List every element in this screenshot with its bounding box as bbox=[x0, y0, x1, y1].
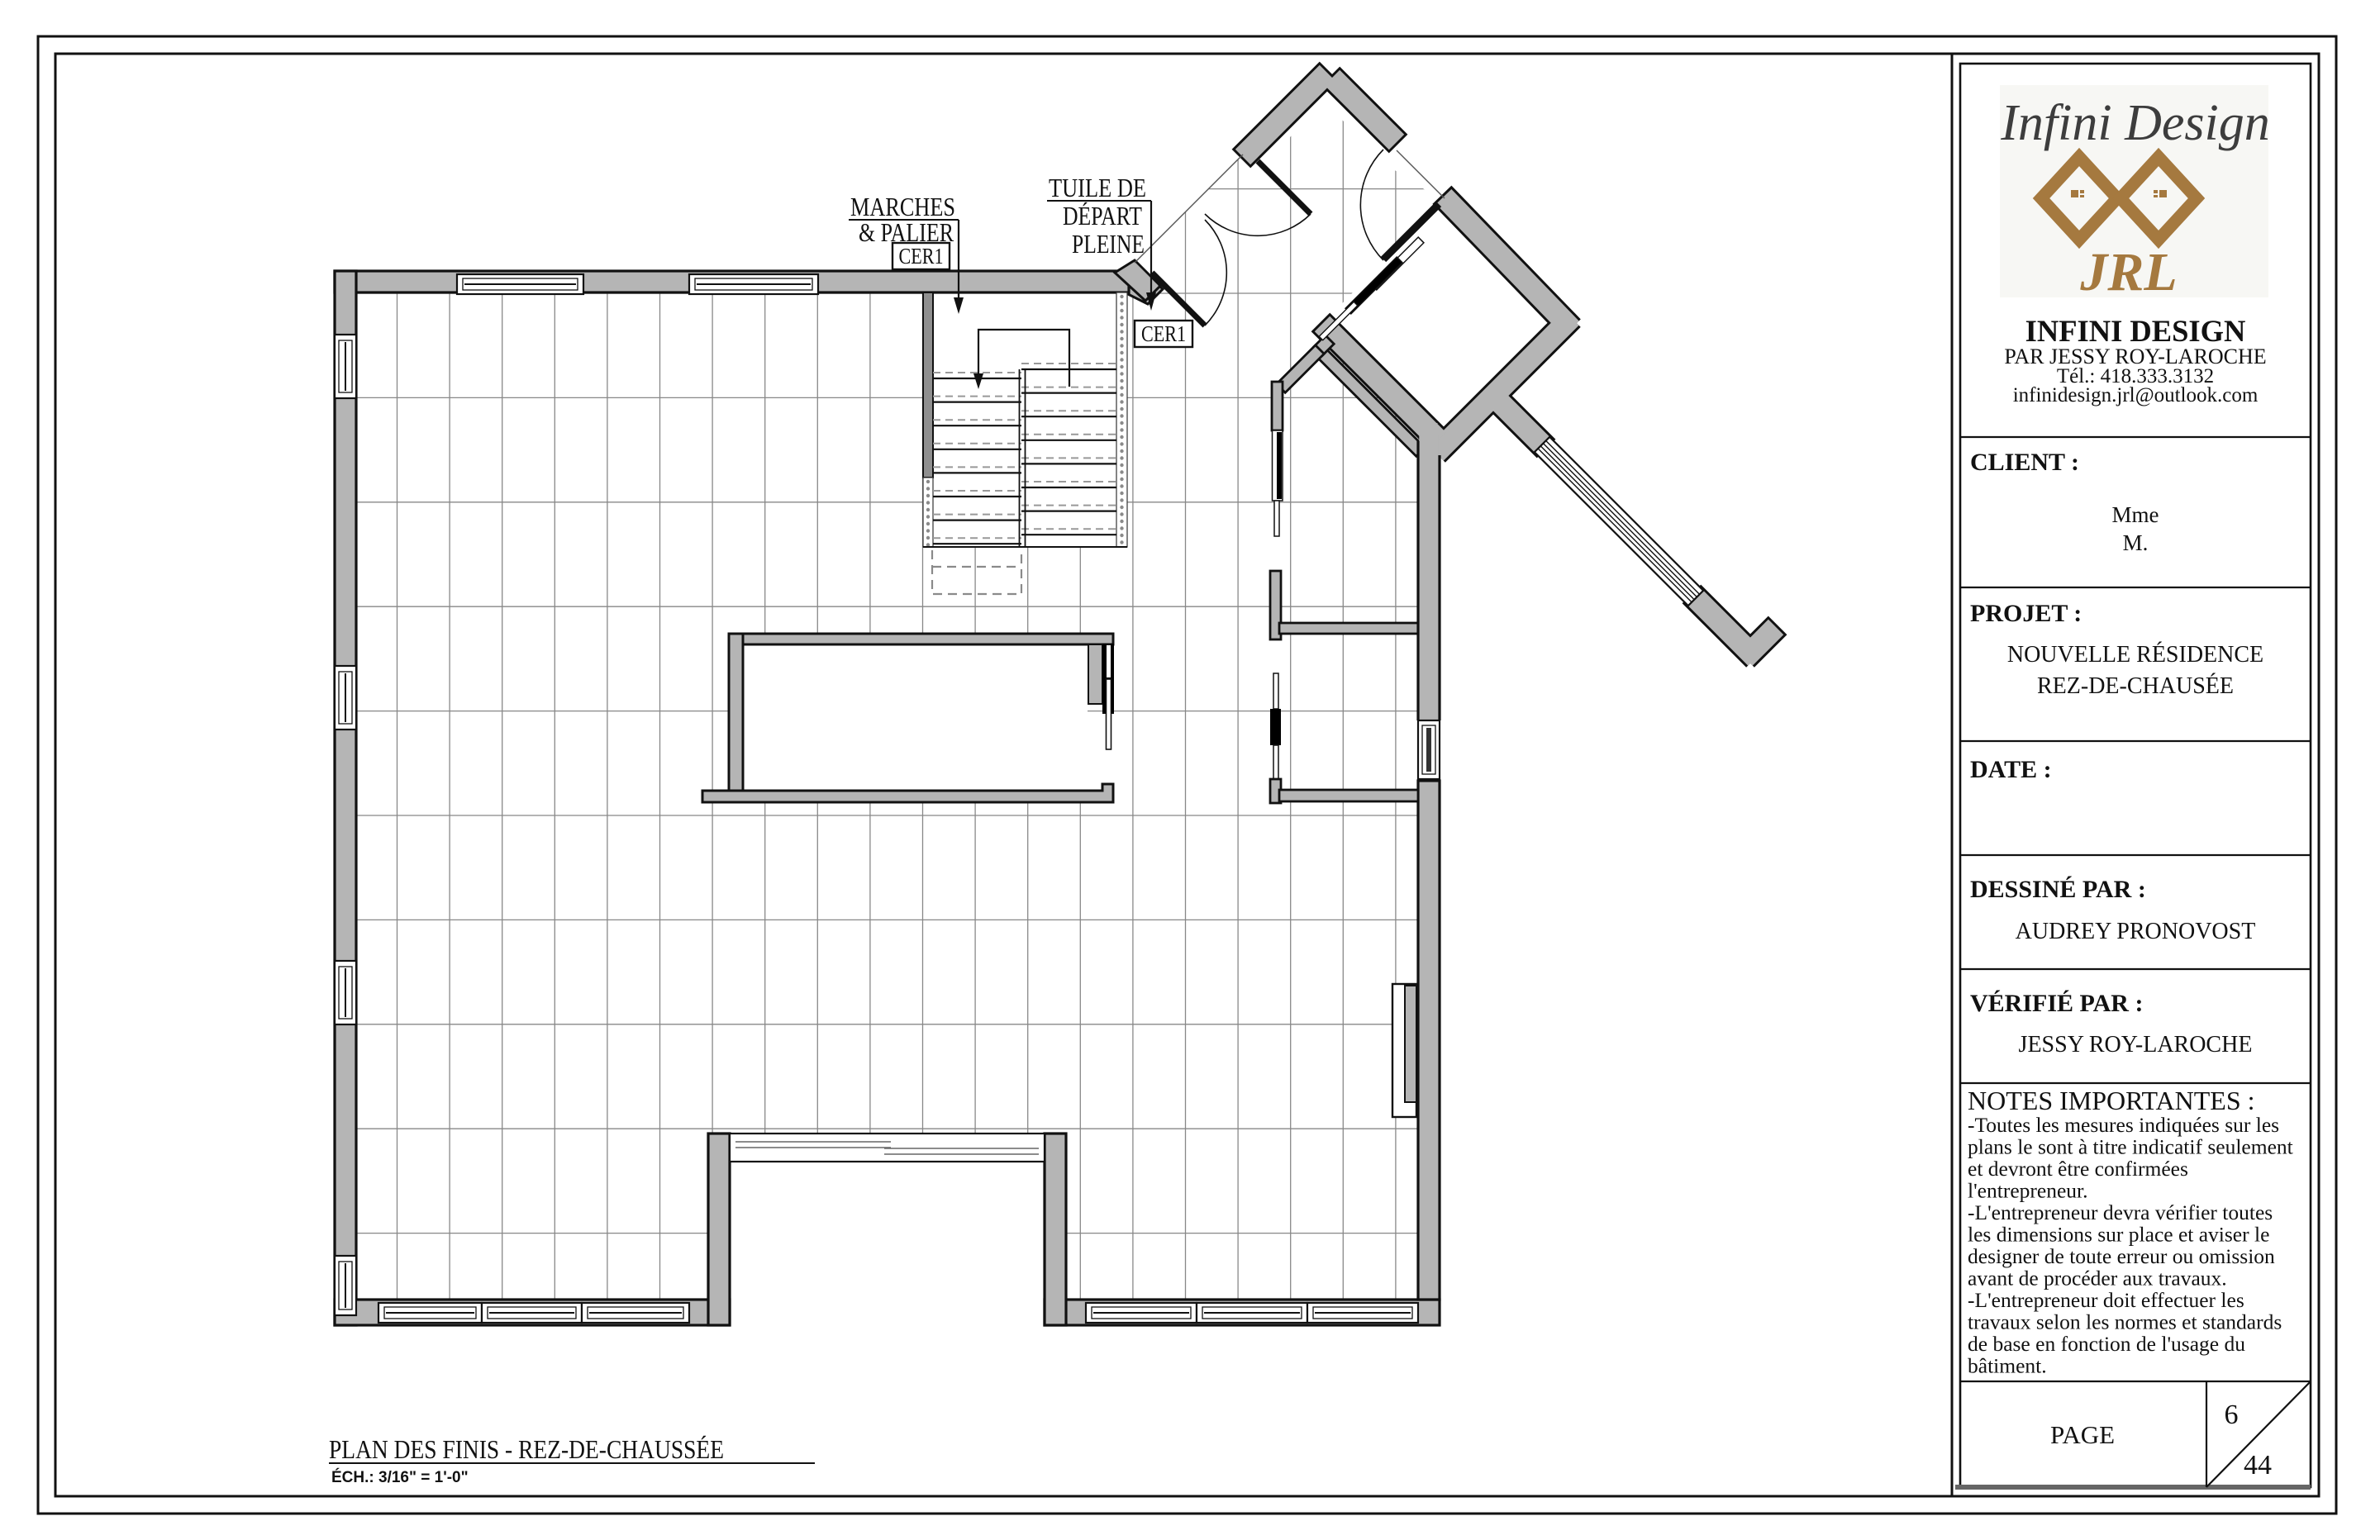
svg-text:PLAN DES FINIS - REZ-DE-CHAUSS: PLAN DES FINIS - REZ-DE-CHAUSSÉE bbox=[329, 1434, 724, 1464]
svg-text:DÉPART: DÉPART bbox=[1063, 201, 1142, 231]
svg-text:PROJET :: PROJET : bbox=[1970, 600, 2082, 627]
svg-text:NOUVELLE RÉSIDENCE: NOUVELLE RÉSIDENCE bbox=[2007, 642, 2263, 668]
svg-text:JRL: JRL bbox=[2079, 242, 2177, 302]
svg-text:plans le sont à titre indicati: plans le sont à titre indicatif seulemen… bbox=[1968, 1135, 2293, 1159]
svg-text:DATE :: DATE : bbox=[1970, 756, 2052, 783]
svg-text:JESSY ROY-LAROCHE: JESSY ROY-LAROCHE bbox=[2019, 1032, 2253, 1058]
svg-text:ÉCH.: 3/16" = 1'-0": ÉCH.: 3/16" = 1'-0" bbox=[331, 1468, 469, 1486]
svg-text:Infini Design: Infini Design bbox=[2000, 95, 2269, 151]
svg-text:Mme: Mme bbox=[2112, 502, 2159, 527]
svg-text:CER1: CER1 bbox=[1141, 321, 1186, 346]
svg-text:-L'entrepreneur doit effectuer: -L'entrepreneur doit effectuer les bbox=[1968, 1288, 2244, 1312]
svg-text:DESSINÉ PAR :: DESSINÉ PAR : bbox=[1970, 876, 2146, 903]
svg-text:6: 6 bbox=[2225, 1400, 2239, 1430]
svg-text:44: 44 bbox=[2244, 1450, 2272, 1481]
svg-text:avant de procéder aux travaux.: avant de procéder aux travaux. bbox=[1968, 1267, 2227, 1290]
svg-text:M.: M. bbox=[2123, 530, 2149, 555]
svg-text:-L'entrepreneur devra vérifier: -L'entrepreneur devra vérifier toutes bbox=[1968, 1200, 2273, 1224]
svg-text:CLIENT :: CLIENT : bbox=[1970, 449, 2079, 476]
svg-text:TUILE DE: TUILE DE bbox=[1049, 173, 1146, 202]
svg-text:l'entrepreneur.: l'entrepreneur. bbox=[1968, 1179, 2087, 1203]
svg-text:PAGE: PAGE bbox=[2050, 1420, 2115, 1449]
svg-text:CER1: CER1 bbox=[899, 244, 944, 269]
svg-text:les dimensions sur place et av: les dimensions sur place et aviser le bbox=[1968, 1223, 2269, 1247]
svg-text:AUDREY PRONOVOST: AUDREY PRONOVOST bbox=[2016, 919, 2256, 944]
svg-text:REZ-DE-CHAUSÉE: REZ-DE-CHAUSÉE bbox=[2037, 673, 2234, 699]
svg-text:bâtiment.: bâtiment. bbox=[1968, 1354, 2047, 1378]
svg-text:NOTES IMPORTANTES :: NOTES IMPORTANTES : bbox=[1968, 1086, 2255, 1115]
svg-text:VÉRIFIÉ PAR :: VÉRIFIÉ PAR : bbox=[1970, 990, 2143, 1017]
svg-text:INFINI DESIGN: INFINI DESIGN bbox=[2025, 314, 2246, 348]
svg-text:designer de toute erreur ou om: designer de toute erreur ou omission bbox=[1968, 1244, 2275, 1268]
svg-text:PLEINE: PLEINE bbox=[1072, 229, 1145, 259]
svg-text:de base en fonction de l'usage: de base en fonction de l'usage du bbox=[1968, 1332, 2245, 1356]
svg-text:travaux selon les normes et st: travaux selon les normes et standards bbox=[1968, 1310, 2282, 1334]
svg-text:et devront être confirmées: et devront être confirmées bbox=[1968, 1157, 2188, 1181]
svg-text:infinidesign.jrl@outlook.com: infinidesign.jrl@outlook.com bbox=[2013, 384, 2259, 406]
svg-text:-Toutes les mesures indiquées: -Toutes les mesures indiquées sur les bbox=[1968, 1113, 2279, 1137]
